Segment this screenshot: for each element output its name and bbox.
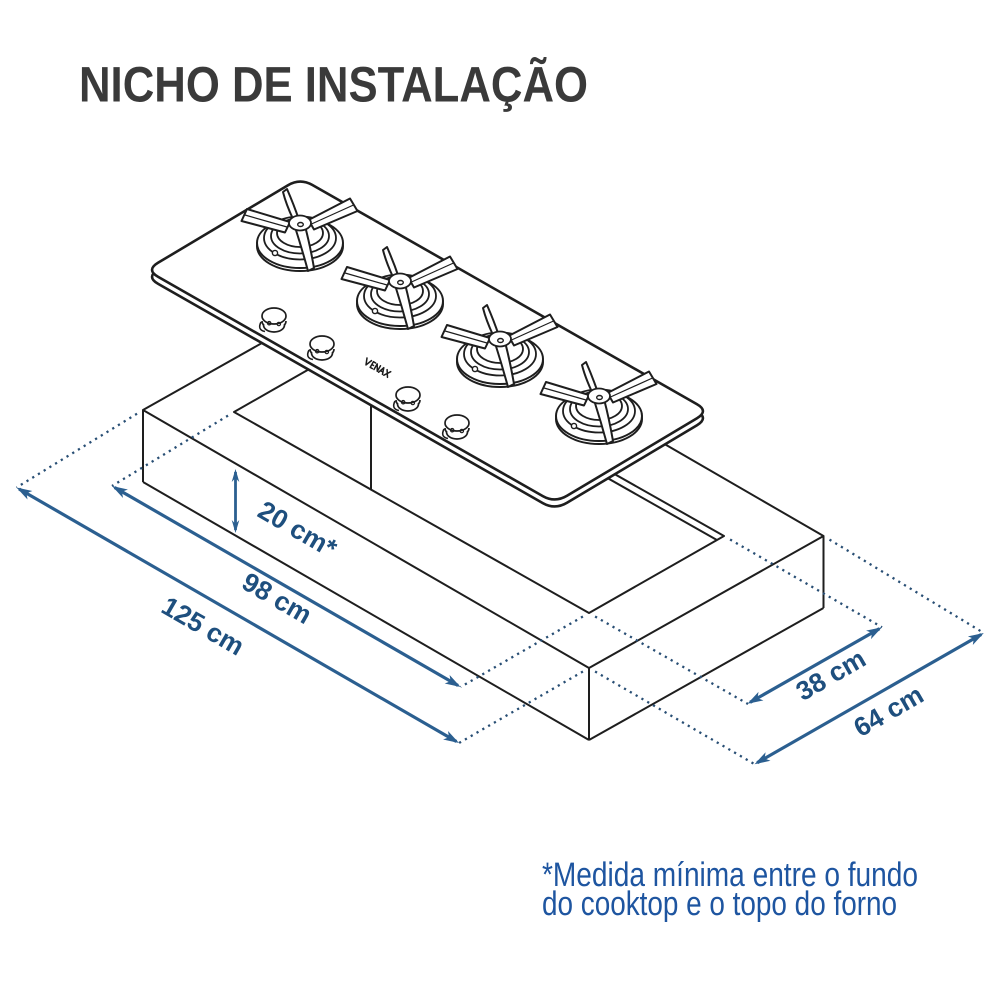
svg-text:38 cm: 38 cm	[791, 643, 871, 707]
svg-text:NICHO DE INSTALAÇÃO: NICHO DE INSTALAÇÃO	[79, 57, 588, 113]
svg-text:125 cm: 125 cm	[157, 591, 250, 662]
svg-text:do cooktop e o topo do forno: do cooktop e o topo do forno	[542, 885, 897, 923]
